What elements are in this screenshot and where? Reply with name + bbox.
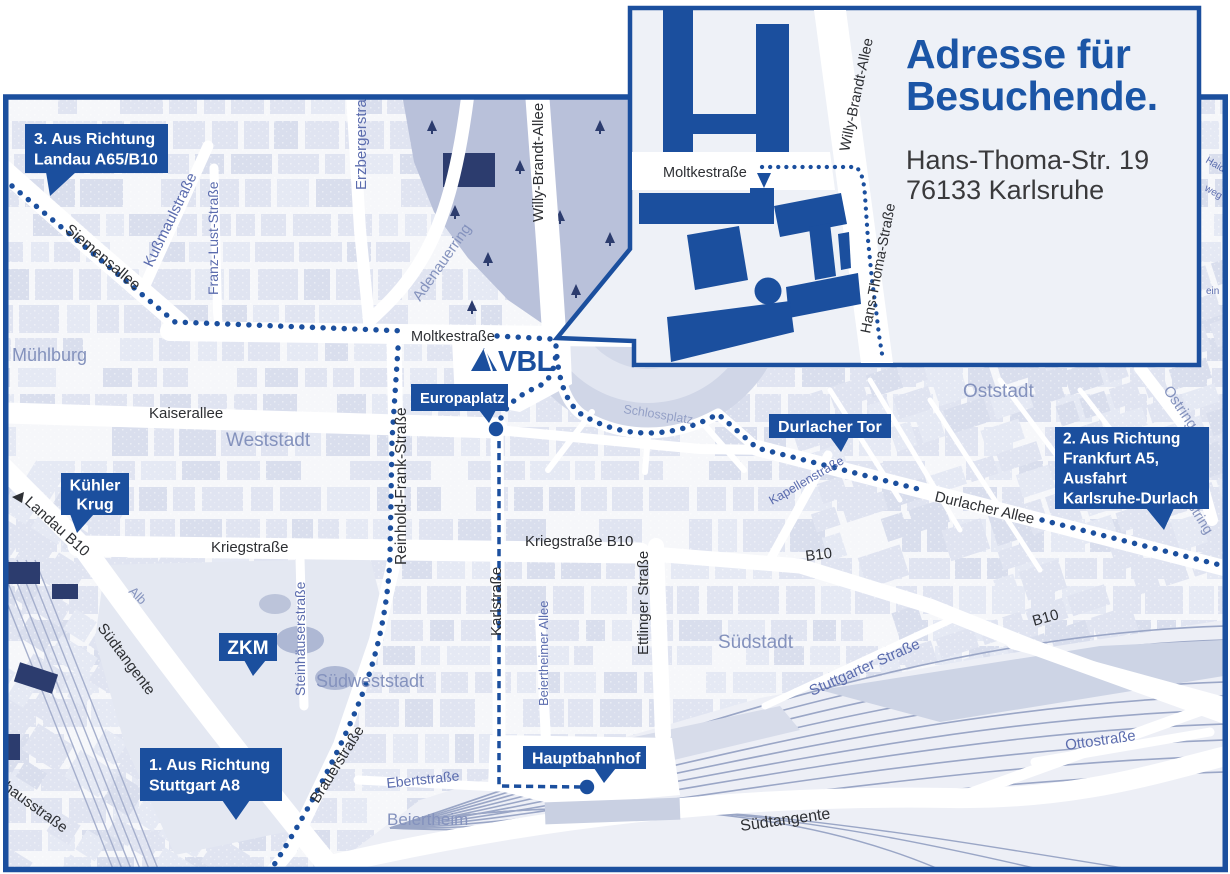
svg-text:Frankfurt A5,: Frankfurt A5,	[1063, 451, 1159, 468]
svg-text:ZKM: ZKM	[227, 638, 268, 659]
svg-text:Moltkestraße: Moltkestraße	[663, 165, 747, 181]
svg-text:Ausfahrt: Ausfahrt	[1063, 471, 1127, 488]
svg-text:Hauptbahnhof: Hauptbahnhof	[532, 750, 641, 767]
svg-text:Hans-Thoma-Str. 19: Hans-Thoma-Str. 19	[906, 145, 1149, 175]
svg-text:Reinhold-Frank-Straße: Reinhold-Frank-Straße	[393, 407, 410, 565]
svg-text:Kriegstraße B10: Kriegstraße B10	[525, 533, 633, 550]
svg-text:Stuttgart A8: Stuttgart A8	[149, 778, 240, 795]
svg-text:76133 Karlsruhe: 76133 Karlsruhe	[906, 175, 1104, 205]
svg-text:VBL: VBL	[498, 346, 554, 378]
svg-text:Franz-Lust-Straße: Franz-Lust-Straße	[205, 181, 221, 295]
svg-text:2. Aus Richtung: 2. Aus Richtung	[1063, 431, 1180, 448]
svg-text:B10: B10	[804, 545, 833, 565]
svg-text:ein: ein	[1206, 286, 1219, 297]
svg-text:Krug: Krug	[76, 496, 113, 513]
svg-text:Oststadt: Oststadt	[963, 381, 1034, 402]
svg-text:Besuchende.: Besuchende.	[906, 73, 1158, 119]
svg-text:Willy-Brandt-Allee: Willy-Brandt-Allee	[530, 103, 547, 222]
svg-text:Beiertheimer Allee: Beiertheimer Allee	[536, 601, 551, 707]
svg-text:Südstadt: Südstadt	[718, 632, 794, 653]
svg-text:Kaiserallee: Kaiserallee	[149, 405, 223, 422]
svg-text:1. Aus Richtung: 1. Aus Richtung	[149, 757, 270, 774]
svg-text:Weststadt: Weststadt	[226, 430, 311, 451]
svg-text:Ettlinger Straße: Ettlinger Straße	[635, 551, 652, 655]
svg-text:Steinhäuserstraße: Steinhäuserstraße	[292, 581, 308, 696]
svg-text:Beiertheim: Beiertheim	[387, 810, 468, 829]
svg-text:Durlacher Tor: Durlacher Tor	[778, 419, 882, 436]
svg-text:Moltkestraße: Moltkestraße	[411, 329, 495, 345]
svg-text:Landau A65/B10: Landau A65/B10	[34, 152, 158, 169]
svg-text:3. Aus Richtung: 3. Aus Richtung	[34, 131, 155, 148]
svg-text:Kühler: Kühler	[70, 477, 121, 494]
svg-text:Adresse für: Adresse für	[906, 31, 1131, 77]
svg-text:Karlstraße: Karlstraße	[488, 567, 505, 636]
svg-text:Karlsruhe-Durlach: Karlsruhe-Durlach	[1063, 491, 1198, 508]
svg-text:Kriegstraße: Kriegstraße	[211, 539, 289, 556]
svg-text:Europaplatz: Europaplatz	[420, 391, 505, 407]
svg-text:Mühlburg: Mühlburg	[12, 345, 87, 365]
svg-text:Südweststadt: Südweststadt	[316, 671, 424, 691]
